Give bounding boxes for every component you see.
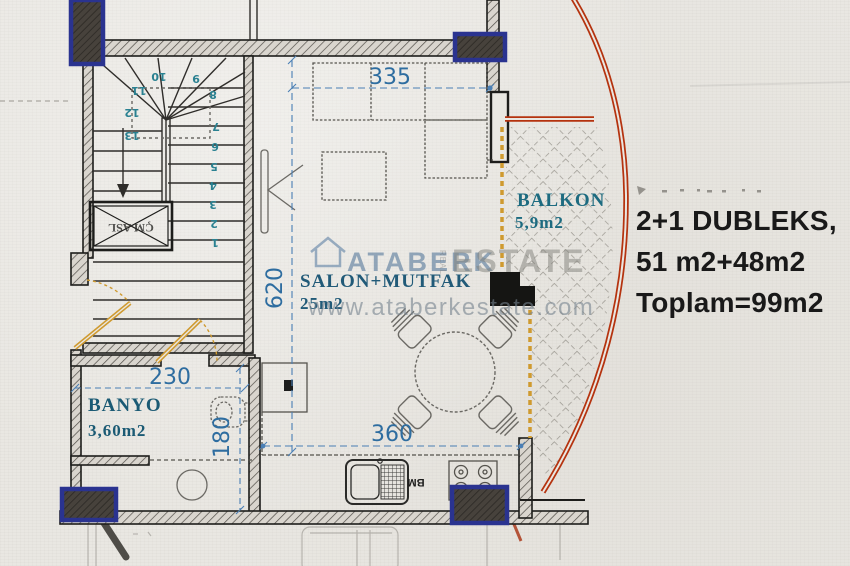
info-line-type: 2+1 DUBLEKS, <box>636 200 846 241</box>
watermark-real: REAL <box>438 250 447 275</box>
watermark-estate: ESTATE <box>452 243 585 280</box>
listing-info-panel: 2+1 DUBLEKS, 51 m2+48m2 Toplam=99m2 <box>636 200 846 323</box>
info-line-total: Toplam=99m2 <box>636 282 846 323</box>
info-line-areas: 51 m2+48m2 <box>636 241 846 282</box>
floor-plan-scan: ÇM ASL 1 2 3 4 5 6 7 8 9 10 11 12 13 <box>0 0 850 566</box>
watermark-house-icon <box>308 235 348 269</box>
watermark-url: www.ataberkestate.com <box>308 294 594 322</box>
